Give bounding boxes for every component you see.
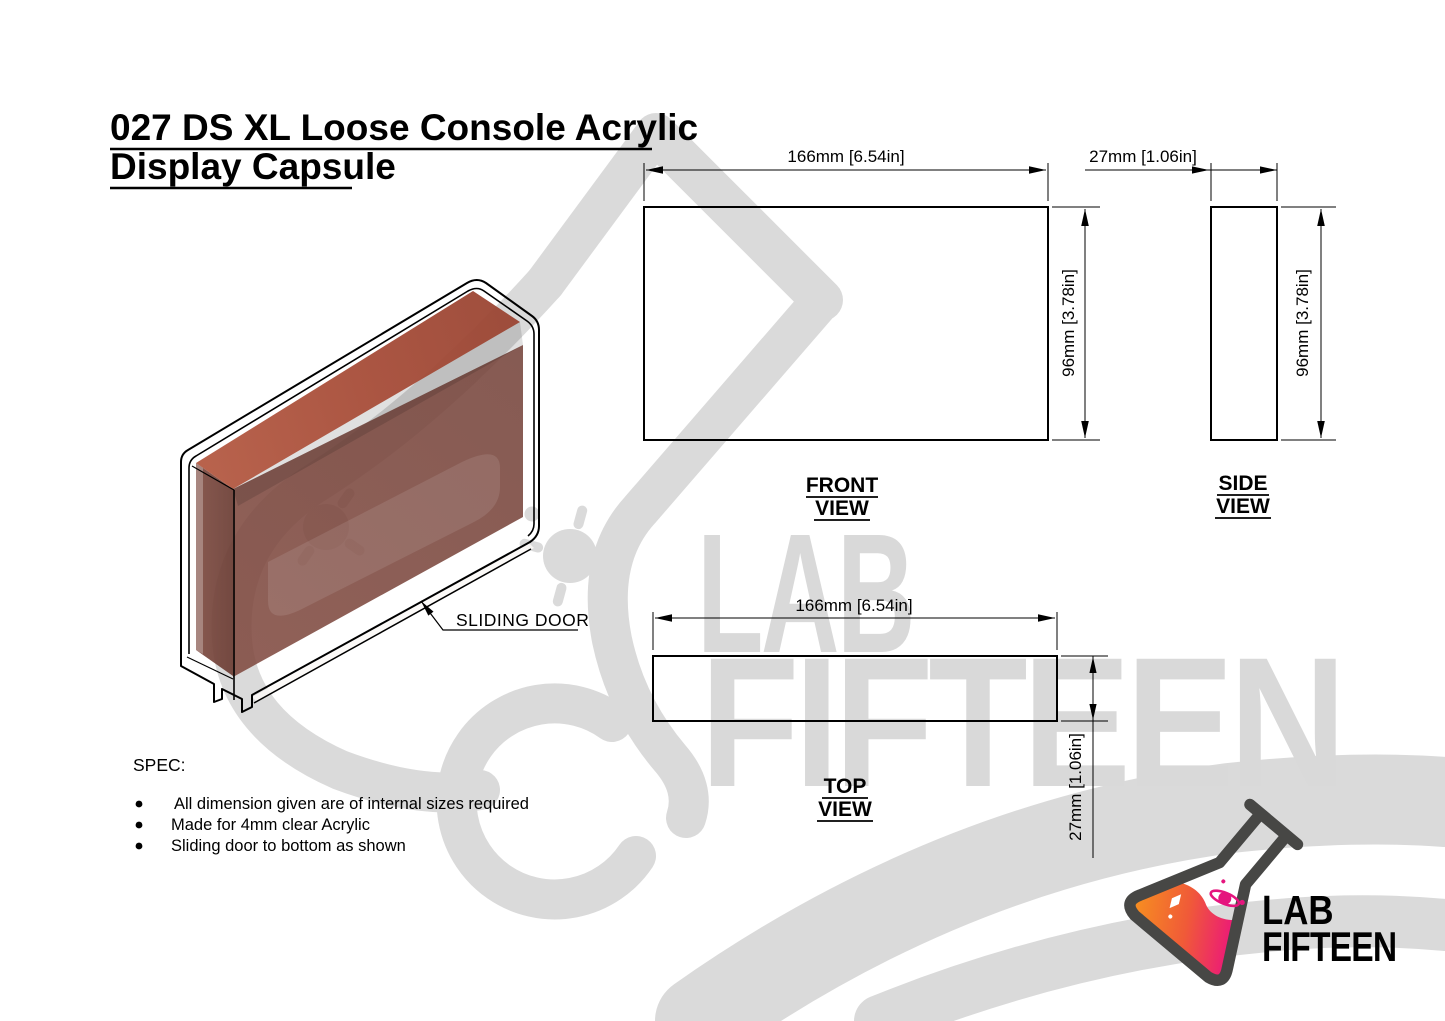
front-view-label-line2: VIEW (815, 497, 869, 520)
side-view-width-dim: 27mm [1.06in] (1089, 147, 1197, 166)
side-view-label-line2: VIEW (1216, 495, 1270, 518)
page-title-line1: 027 DS XL Loose Console Acrylic (110, 107, 698, 148)
top-view-label-line1: TOP (824, 775, 867, 798)
console-left-cap-highlight (196, 463, 203, 654)
side-view-label-line1: SIDE (1218, 472, 1267, 495)
side-view-outline (1211, 207, 1277, 440)
front-view-width-dim: 166mm [6.54in] (787, 147, 904, 166)
spec-bullet-icons (136, 801, 143, 850)
side-view: 27mm [1.06in] 96mm [3.78in] SIDE VIEW (1085, 147, 1336, 518)
top-view-label-line2: VIEW (818, 798, 872, 821)
watermark-flask-neck-left (545, 138, 652, 283)
front-view-height-dim: 96mm [3.78in] (1059, 269, 1078, 377)
iso-view: SLIDING DOOR (181, 280, 589, 712)
spec-item: Sliding door to bottom as shown (171, 837, 406, 855)
drawing-canvas: LAB FIFTEEN SLIDING DOOR (0, 0, 1445, 1021)
logo-word-fifteen: FIFTEEN (1262, 925, 1396, 971)
sliding-door-label: SLIDING DOOR (456, 610, 589, 630)
page-title-line2: Display Capsule (110, 146, 396, 187)
top-view-depth-dim: 27mm [1.06in] (1066, 733, 1085, 841)
spec-heading: SPEC: (133, 755, 186, 775)
spec-item: Made for 4mm clear Acrylic (171, 816, 370, 834)
sliding-door-callout: SLIDING DOOR (421, 601, 589, 630)
side-view-height-dim: 96mm [3.78in] (1293, 269, 1312, 377)
top-view-width-dim: 166mm [6.54in] (795, 596, 912, 615)
front-view-label-line1: FRONT (806, 474, 878, 497)
technical-drawing-sheet: LAB FIFTEEN SLIDING DOOR (0, 0, 1445, 1021)
spec-item: All dimension given are of internal size… (174, 795, 529, 813)
